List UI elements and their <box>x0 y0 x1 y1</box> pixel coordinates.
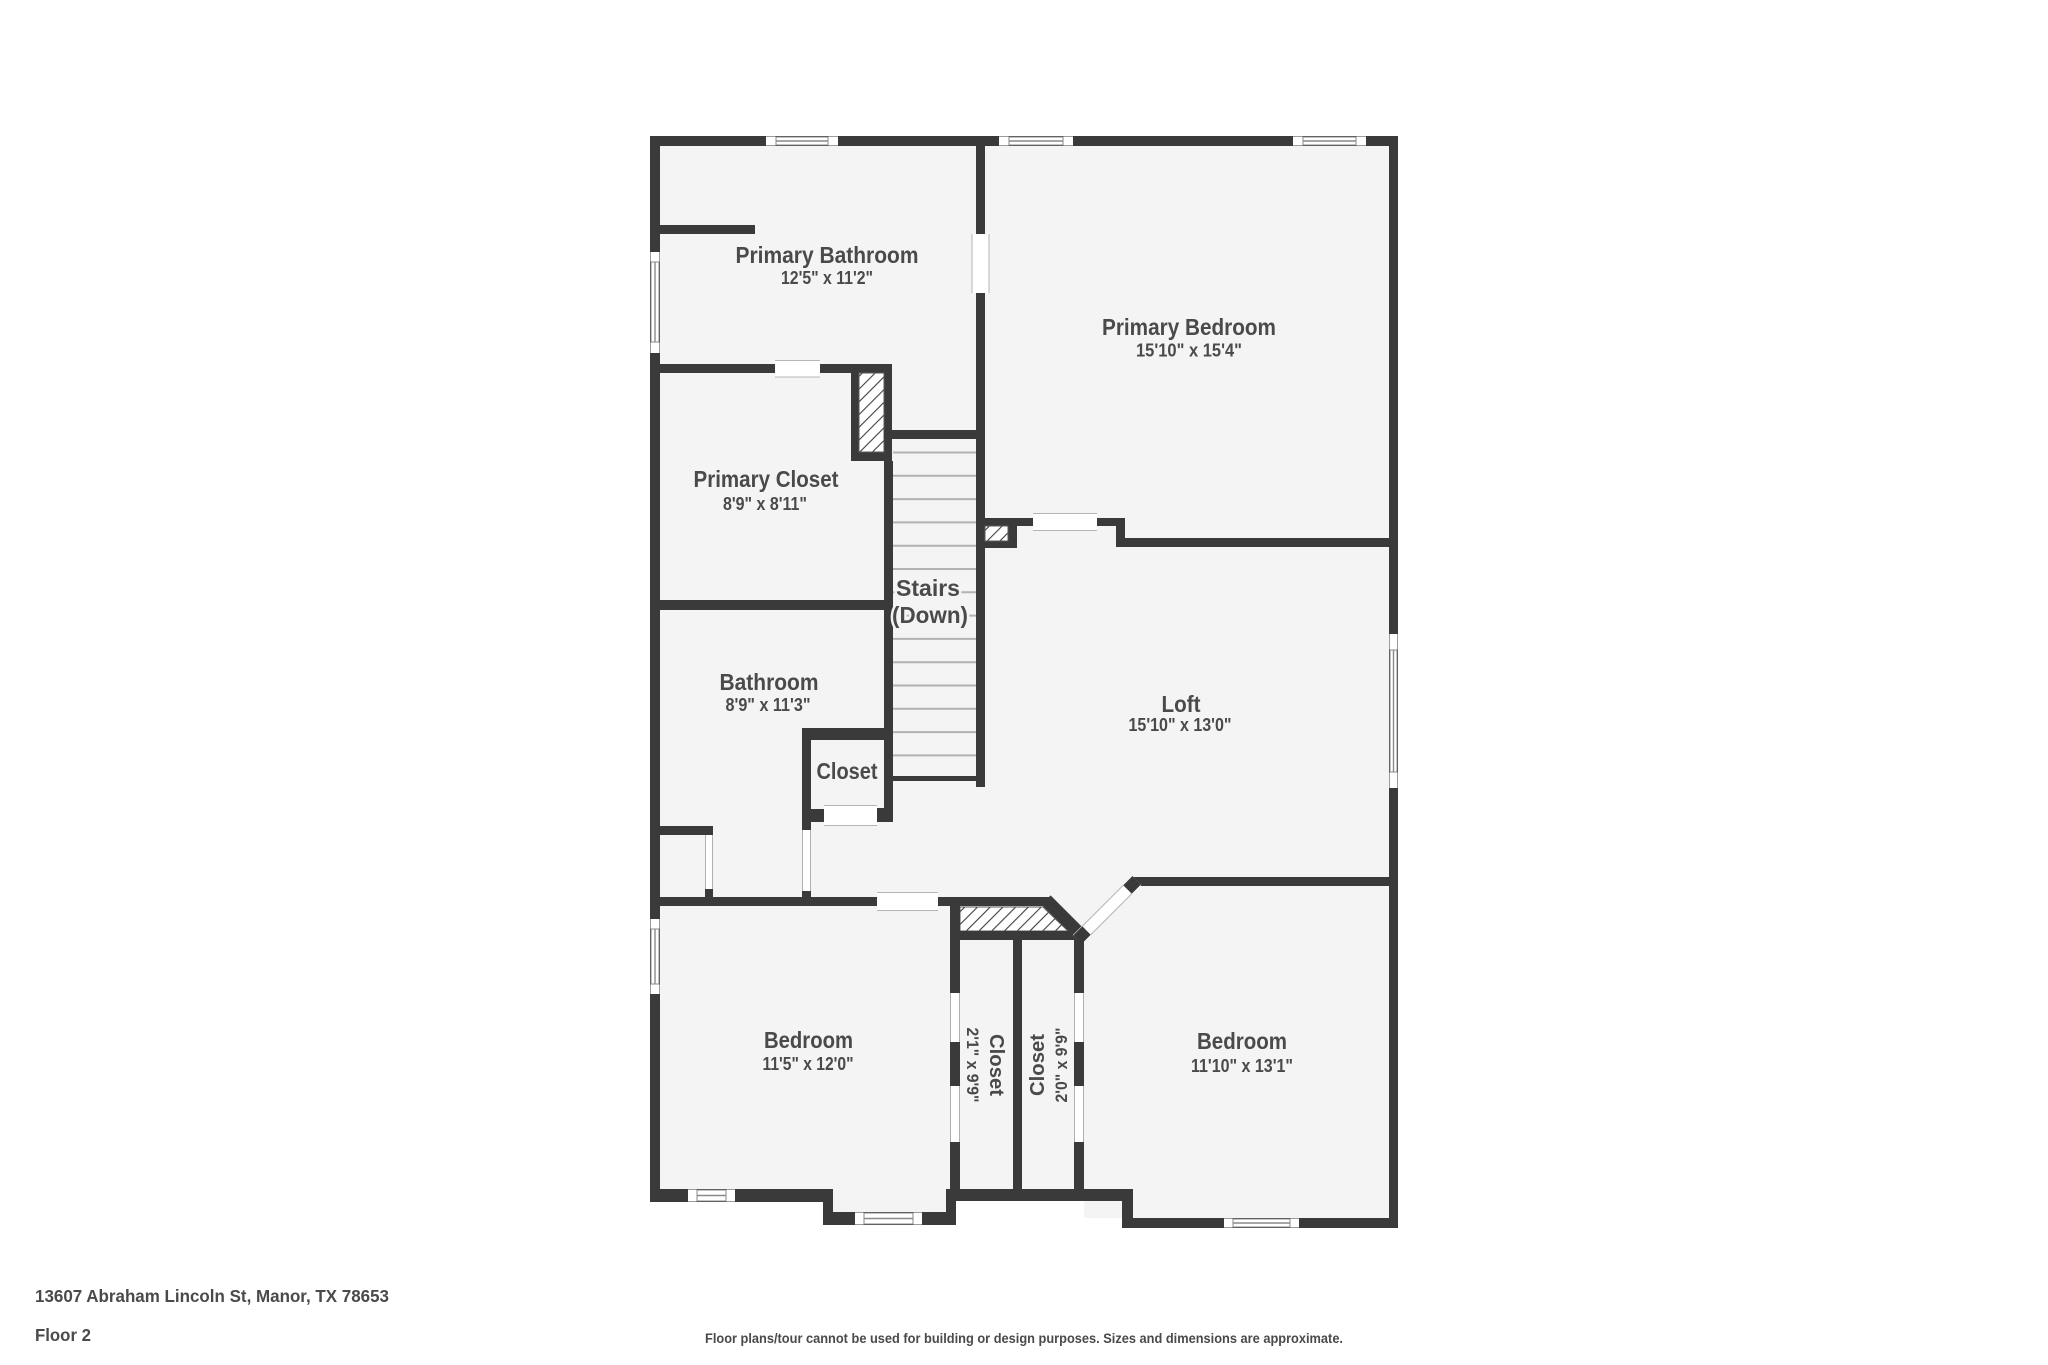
svg-text:2'1" x 9'9": 2'1" x 9'9" <box>963 1028 982 1103</box>
svg-text:Bedroom: Bedroom <box>764 1027 853 1053</box>
svg-text:(Down): (Down) <box>892 602 968 628</box>
svg-text:Bathroom: Bathroom <box>720 669 819 695</box>
svg-text:11'5" x 12'0": 11'5" x 12'0" <box>763 1053 854 1074</box>
svg-text:Closet: Closet <box>985 1034 1007 1096</box>
svg-text:Primary Closet: Primary Closet <box>694 466 839 492</box>
svg-text:Closet: Closet <box>817 758 878 784</box>
svg-text:Bedroom: Bedroom <box>1197 1028 1287 1054</box>
svg-text:Floor plans/tour cannot be use: Floor plans/tour cannot be used for buil… <box>705 1331 1343 1346</box>
svg-text:15'10" x 13'0": 15'10" x 13'0" <box>1129 714 1232 735</box>
svg-text:Stairs: Stairs <box>896 575 960 601</box>
svg-text:12'5" x 11'2": 12'5" x 11'2" <box>781 267 873 288</box>
svg-text:8'9" x 11'3": 8'9" x 11'3" <box>726 694 811 715</box>
svg-text:Floor 2: Floor 2 <box>35 1325 91 1345</box>
svg-text:2'0" x 9'9": 2'0" x 9'9" <box>1052 1028 1071 1103</box>
svg-text:Primary Bathroom: Primary Bathroom <box>736 242 919 268</box>
svg-text:15'10" x 15'4": 15'10" x 15'4" <box>1136 340 1242 361</box>
svg-text:11'10" x 13'1": 11'10" x 13'1" <box>1191 1055 1293 1076</box>
svg-text:8'9" x 8'11": 8'9" x 8'11" <box>723 493 807 514</box>
svg-text:Primary Bedroom: Primary Bedroom <box>1102 314 1276 340</box>
svg-text:13607 Abraham Lincoln St, Mano: 13607 Abraham Lincoln St, Manor, TX 7865… <box>35 1286 389 1306</box>
svg-text:Closet: Closet <box>1027 1034 1049 1096</box>
